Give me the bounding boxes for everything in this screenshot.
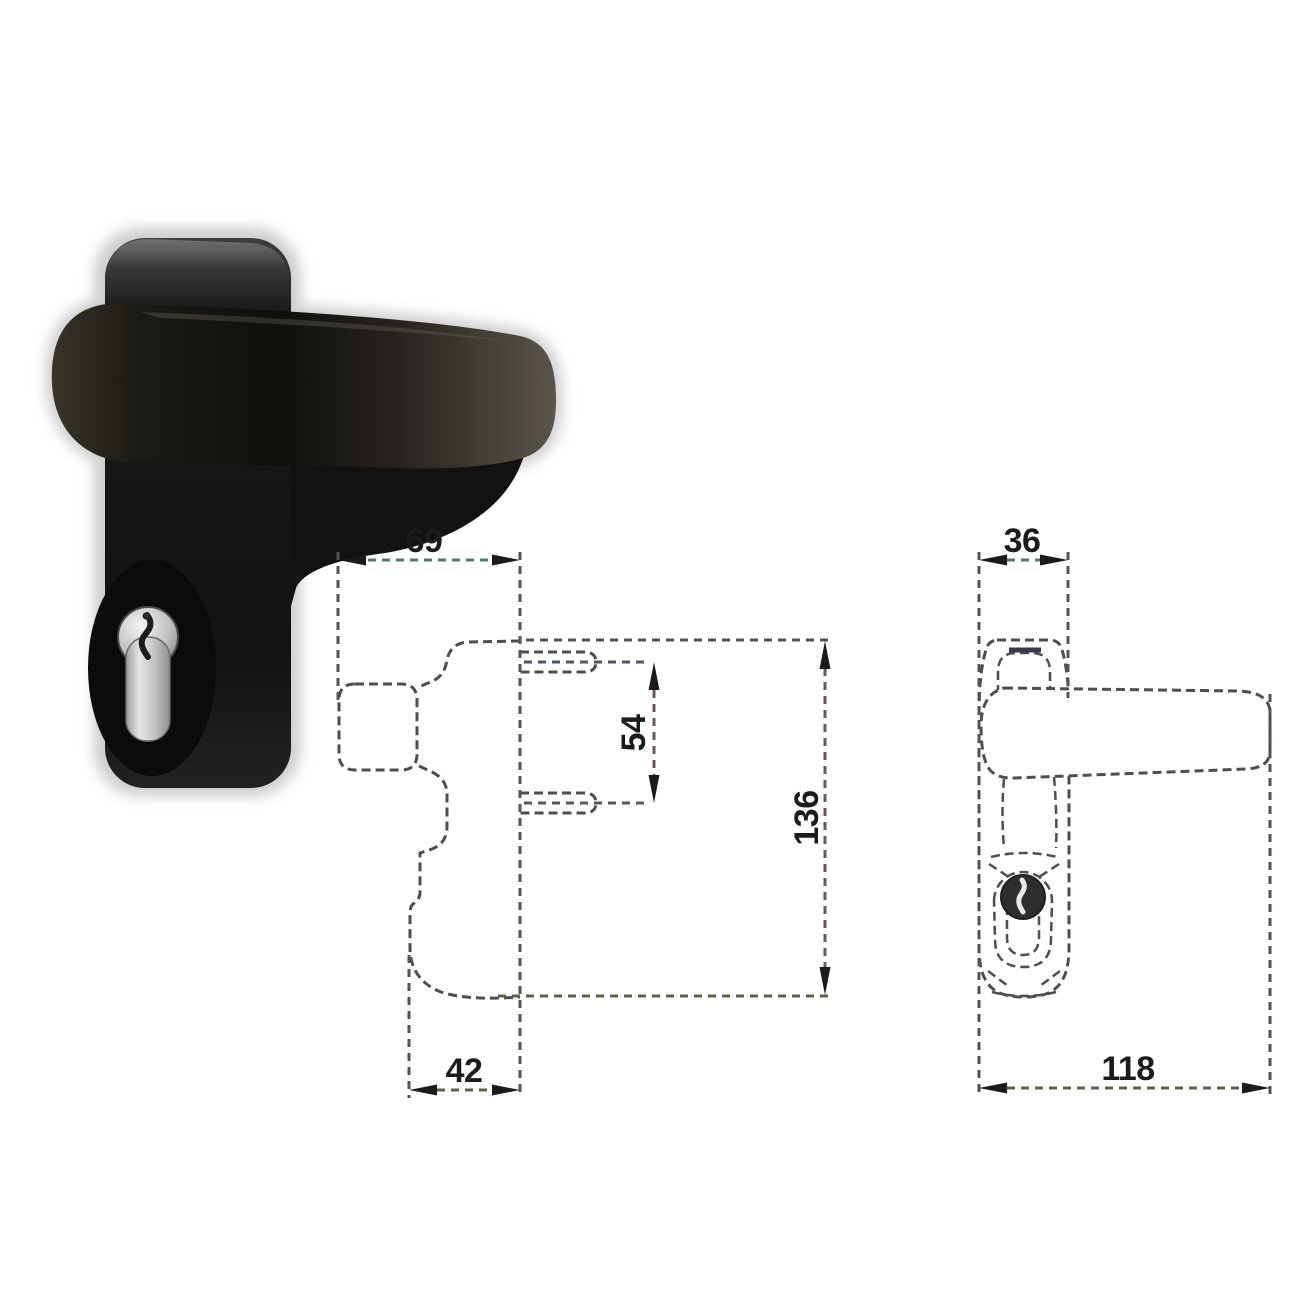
dim-label-54: 54	[615, 714, 653, 751]
scanned-page: 69 54 136 42	[0, 0, 1300, 1300]
arrow-69-right	[492, 555, 520, 566]
front-neck-hidden-right	[1054, 777, 1056, 848]
front-view-dimensions	[979, 552, 1270, 1098]
arrow-54-up	[649, 662, 660, 690]
keyway-pin	[143, 613, 150, 620]
front-view	[979, 640, 1270, 997]
arrow-54-down	[649, 775, 660, 803]
side-body-outline	[419, 641, 520, 687]
dim-label-69: 69	[406, 522, 443, 560]
front-escutcheon-top	[991, 853, 1057, 857]
arrow-118-right	[1242, 1083, 1270, 1094]
front-lever	[981, 688, 1270, 778]
dim-label-118: 118	[1101, 1050, 1154, 1088]
arrow-42-left	[409, 1085, 437, 1096]
dim-label-136: 136	[788, 790, 826, 845]
side-lower-body-outline	[410, 766, 520, 998]
dim-label-36: 36	[1004, 522, 1041, 560]
side-view	[339, 641, 596, 998]
front-neck-hidden-left	[1003, 779, 1005, 848]
side-grip-section	[339, 684, 417, 770]
arrow-36-right	[1040, 555, 1068, 566]
arrow-42-right	[492, 1085, 520, 1096]
arrow-118-left	[979, 1083, 1007, 1094]
dim-label-42: 42	[446, 1052, 483, 1090]
front-view-arrows	[979, 555, 1270, 1094]
front-chamfer-bottom-right	[1040, 971, 1060, 986]
product-photo	[52, 234, 556, 790]
arrow-136-up	[820, 641, 831, 669]
side-view-arrows	[338, 555, 831, 1096]
arrow-136-down	[820, 967, 831, 995]
side-view-dimensions	[338, 552, 832, 1098]
front-cylinder-face	[1001, 875, 1045, 919]
photo-backplate-top-bevel	[105, 239, 291, 312]
front-chamfer-bottom-left	[988, 971, 1008, 986]
